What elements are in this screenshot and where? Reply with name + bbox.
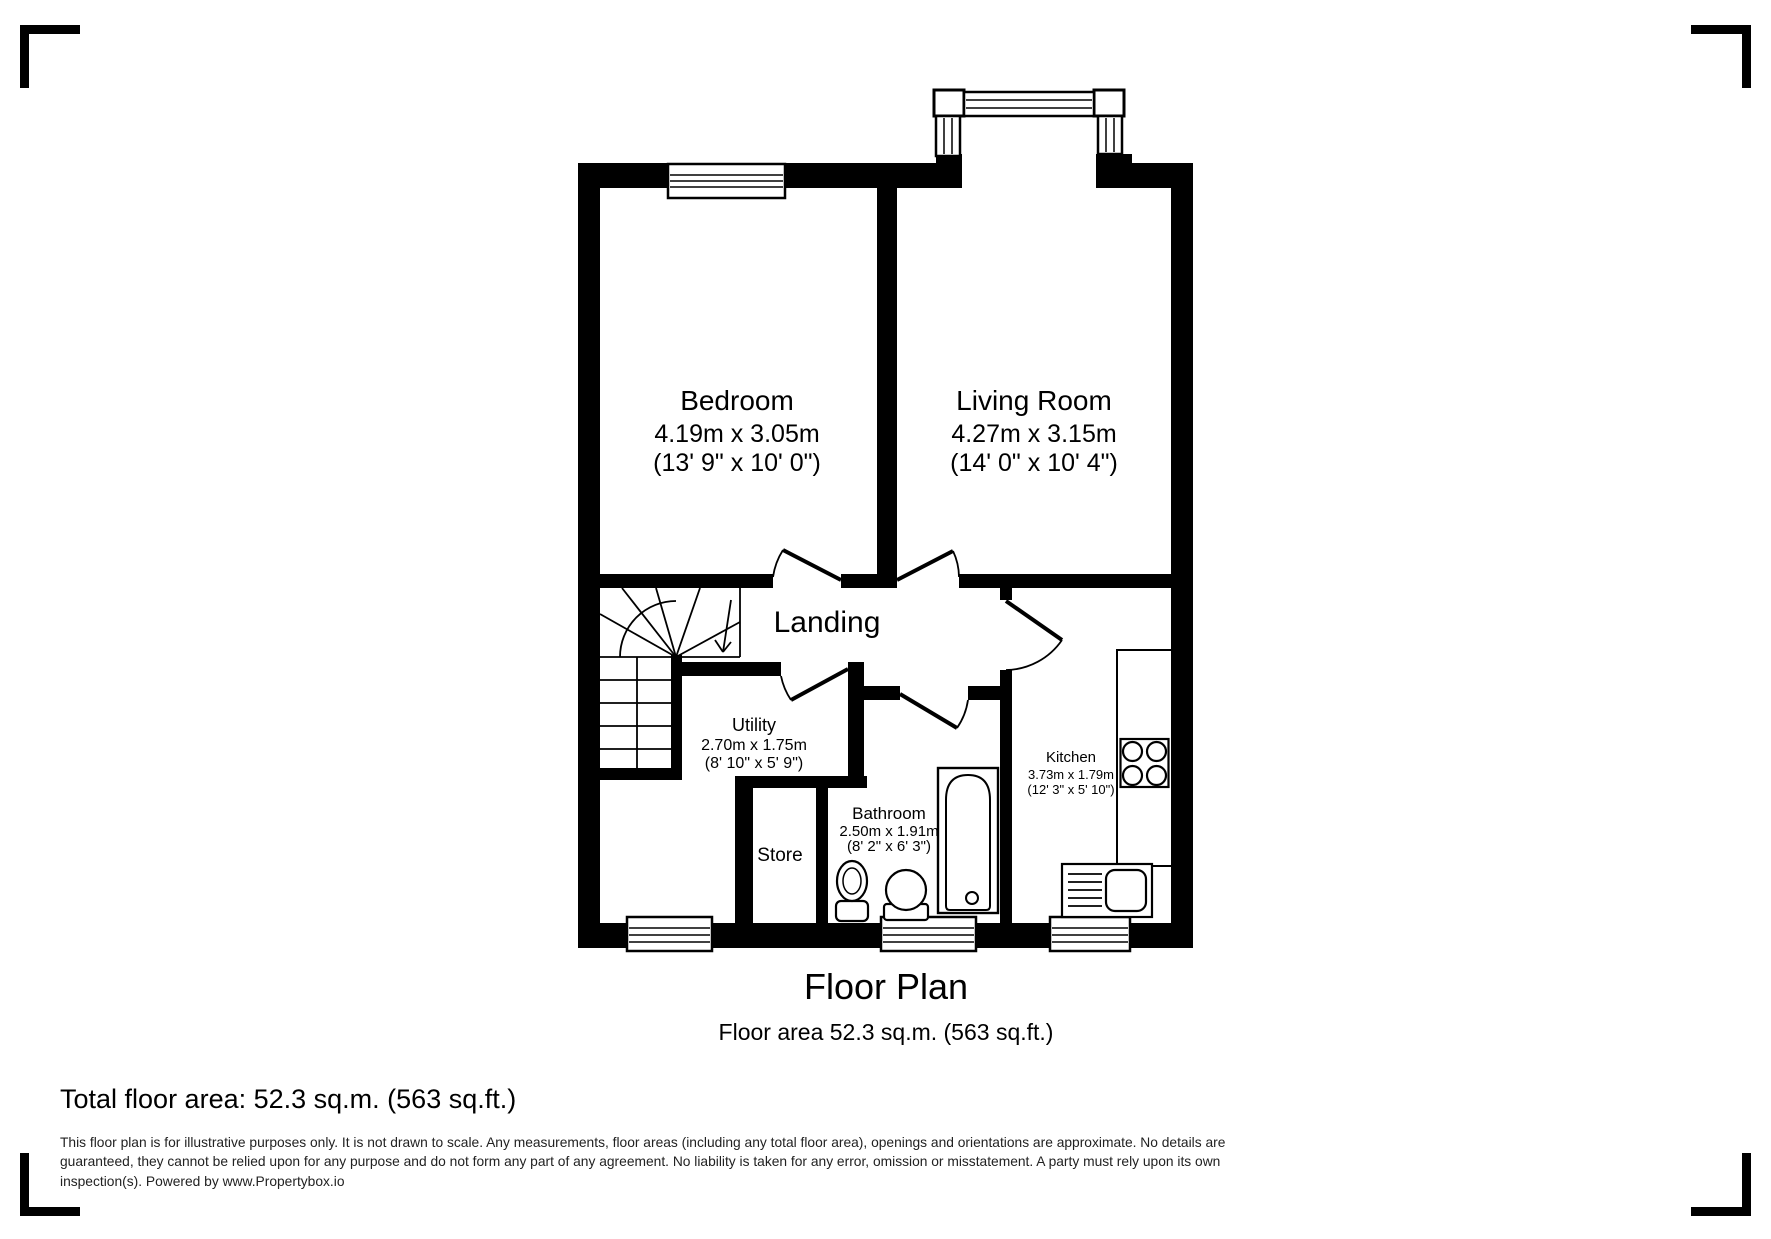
window-kitchen xyxy=(1050,917,1130,951)
window-bedroom xyxy=(668,164,785,198)
wall-stair-bottom xyxy=(600,768,682,780)
wall-store-right xyxy=(816,788,828,923)
basin-icon xyxy=(884,870,928,920)
bedroom-dim-metric: 4.19m x 3.05m xyxy=(654,420,819,448)
utility-dim-imperial: (8' 10" x 5' 9") xyxy=(705,755,803,772)
wall-understairs-divider xyxy=(735,776,753,923)
window-bay xyxy=(934,90,1124,156)
bay-window-right xyxy=(1098,116,1122,154)
wall-right xyxy=(1171,163,1193,948)
toilet-icon xyxy=(836,861,868,921)
bathroom-label: Bathroom xyxy=(852,804,926,823)
wall-utility-top xyxy=(682,662,781,676)
bay-corner-left xyxy=(934,90,964,116)
kitchen-dim-imperial: (12' 3" x 5' 10") xyxy=(1027,782,1114,797)
wall-landing-top-right xyxy=(959,574,1171,588)
living-room-dim-imperial: (14' 0" x 10' 4") xyxy=(950,449,1118,477)
bedroom-label: Bedroom xyxy=(680,385,794,416)
wall-kitchen-door-stub xyxy=(1000,574,1012,600)
wall-left xyxy=(578,163,600,948)
bathtub-icon xyxy=(938,768,998,913)
door-bedroom xyxy=(773,550,841,580)
living-room-label: Living Room xyxy=(956,385,1112,416)
corner-bracket-top-left xyxy=(25,30,81,89)
wall-utility-right xyxy=(848,662,864,776)
store-label: Store xyxy=(757,845,802,866)
living-room-dim-metric: 4.27m x 3.15m xyxy=(951,420,1116,448)
corner-bracket-bottom-right xyxy=(1691,1153,1747,1212)
bay-corner-right xyxy=(1094,90,1124,116)
bedroom-dim-imperial: (13' 9" x 10' 0") xyxy=(653,449,821,477)
plan-title: Floor Plan xyxy=(804,966,968,1007)
wall-bathroom-top-right xyxy=(968,686,1000,700)
kitchen-dim-metric: 3.73m x 1.79m xyxy=(1028,767,1114,782)
bay-window-left xyxy=(936,116,960,156)
utility-dim-metric: 2.70m x 1.75m xyxy=(701,737,807,754)
wall-stair-right xyxy=(671,655,682,780)
floor-plan-canvas: Bedroom 4.19m x 3.05m (13' 9" x 10' 0") … xyxy=(0,0,1771,1239)
wall-bay-left-fill xyxy=(936,154,962,188)
wall-bathroom-top-left xyxy=(864,686,900,700)
kitchen-label: Kitchen xyxy=(1046,749,1096,766)
door-living-room xyxy=(897,551,959,580)
wall-landing-top-mid xyxy=(841,574,897,588)
total-floor-area: Total floor area: 52.3 sq.m. (563 sq.ft.… xyxy=(60,1084,516,1115)
wall-utility-bottom xyxy=(735,776,867,788)
window-bathroom xyxy=(881,917,976,951)
corner-bracket-top-right xyxy=(1691,30,1747,89)
wall-bay-right-fill xyxy=(1096,154,1132,188)
window-understairs xyxy=(627,917,712,951)
door-utility xyxy=(781,669,848,700)
wall-landing-top-left xyxy=(600,574,773,588)
sink-icon xyxy=(1062,864,1152,917)
plan-subtitle: Floor area 52.3 sq.m. (563 sq.ft.) xyxy=(719,1019,1054,1045)
bay-window-top xyxy=(964,92,1094,116)
stair-direction-arrow xyxy=(715,600,731,652)
plan-caption: Floor Plan Floor area 52.3 sq.m. (563 sq… xyxy=(719,966,1054,1045)
wall-bedroom-living-divider xyxy=(877,188,897,575)
door-bathroom xyxy=(900,694,968,728)
utility-label: Utility xyxy=(732,715,776,735)
hob-icon xyxy=(1121,739,1169,787)
disclaimer-text: This floor plan is for illustrative purp… xyxy=(60,1133,1238,1191)
wall-kitchen-left xyxy=(1000,670,1012,923)
landing-label: Landing xyxy=(774,606,881,639)
bathroom-dim-imperial: (8' 2" x 6' 3") xyxy=(847,838,931,855)
door-kitchen xyxy=(1006,601,1062,670)
floorplan-page: Bedroom 4.19m x 3.05m (13' 9" x 10' 0") … xyxy=(0,0,1771,1239)
